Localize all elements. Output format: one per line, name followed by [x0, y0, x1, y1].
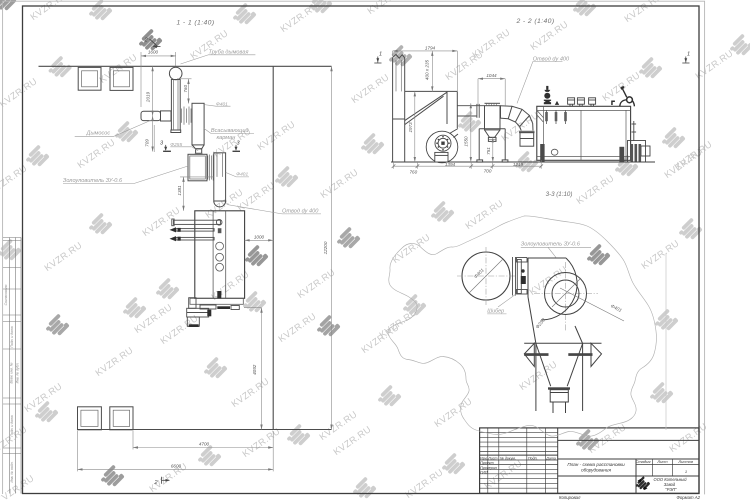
svg-text:KVZR.RU: KVZR.RU	[623, 0, 664, 24]
svg-text:KVZR.RU: KVZR.RU	[296, 267, 337, 300]
svg-text:Стадия: Стадия	[636, 459, 652, 464]
svg-text:Золоуловитель ЗУ-0.6: Золоуловитель ЗУ-0.6	[63, 178, 123, 184]
svg-text:1000: 1000	[254, 234, 265, 239]
svg-text:6600: 6600	[171, 464, 182, 469]
svg-text:Проект: Проект	[480, 461, 493, 465]
svg-text:12200: 12200	[323, 241, 328, 254]
svg-text:KVZR.RU: KVZR.RU	[360, 322, 401, 355]
svg-text:KVZR.RU: KVZR.RU	[694, 48, 735, 81]
svg-text:Изм.: Изм.	[480, 456, 488, 460]
svg-text:ГИП: ГИП	[480, 471, 488, 475]
svg-text:KVZR.RU: KVZR.RU	[404, 467, 445, 500]
svg-text:"РЭП": "РЭП"	[665, 487, 677, 492]
svg-text:KVZR.RU: KVZR.RU	[159, 313, 200, 346]
svg-text:№ докум.: № докум.	[500, 456, 516, 460]
svg-text:карман: карман	[217, 135, 236, 141]
svg-text:KVZR.RU: KVZR.RU	[94, 345, 135, 378]
svg-text:KVZR.RU: KVZR.RU	[0, 76, 39, 109]
svg-text:Лист: Лист	[487, 456, 497, 460]
svg-text:Инв. № дубл.: Инв. № дубл.	[16, 363, 20, 384]
svg-text:KVZR.RU: KVZR.RU	[43, 240, 84, 273]
svg-text:Листов: Листов	[677, 459, 693, 464]
svg-text:KVZR.RU: KVZR.RU	[518, 359, 559, 392]
svg-text:Формат А2: Формат А2	[677, 495, 701, 500]
svg-text:KVZR.RU: KVZR.RU	[668, 421, 709, 454]
svg-text:1 - 1 (1:40): 1 - 1 (1:40)	[176, 20, 214, 27]
svg-text:План - схема расстановки: План - схема расстановки	[567, 462, 625, 467]
svg-text:Взам. инв. №: Взам. инв. №	[10, 362, 14, 383]
svg-text:Подп. и дата: Подп. и дата	[10, 326, 14, 347]
svg-text:KVZR.RU: KVZR.RU	[189, 28, 230, 61]
svg-text:Инв. № подл.: Инв. № подл.	[10, 461, 14, 482]
svg-text:Ф401: Ф401	[216, 101, 228, 107]
svg-text:1: 1	[685, 469, 687, 474]
svg-text:KVZR.RU: KVZR.RU	[366, 0, 407, 16]
svg-text:KVZR.RU: KVZR.RU	[444, 49, 485, 82]
svg-text:1: 1	[687, 52, 690, 58]
svg-text:Проверил: Проверил	[480, 466, 496, 470]
svg-text:Ф250: Ф250	[535, 317, 547, 330]
svg-text:KVZR.RU: KVZR.RU	[663, 147, 704, 180]
svg-text:KVZR.RU: KVZR.RU	[241, 426, 282, 459]
svg-text:KVZR.RU: KVZR.RU	[148, 461, 189, 494]
svg-text:400 x 235: 400 x 235	[424, 59, 429, 80]
svg-text:1550: 1550	[464, 136, 469, 147]
svg-text:Шибер: Шибер	[487, 308, 504, 314]
svg-text:KVZR.RU: KVZR.RU	[0, 473, 36, 500]
svg-text:Подп. и дата: Подп. и дата	[10, 415, 14, 436]
svg-text:Ф401: Ф401	[609, 303, 623, 314]
svg-text:1381: 1381	[177, 185, 182, 196]
svg-text:KVZR.RU: KVZR.RU	[230, 376, 271, 409]
svg-text:Дымосос: Дымосос	[86, 131, 111, 137]
svg-text:Отвод dy 400: Отвод dy 400	[282, 208, 319, 214]
svg-text:3-3 (1:10): 3-3 (1:10)	[546, 191, 573, 198]
svg-text:Согласовано: Согласовано	[4, 285, 8, 306]
svg-text:1973: 1973	[408, 122, 413, 133]
svg-text:700: 700	[484, 168, 492, 173]
svg-text:KVZR.RU: KVZR.RU	[319, 167, 360, 200]
svg-text:Копировал: Копировал	[559, 495, 581, 500]
svg-text:KVZR.RU: KVZR.RU	[391, 232, 432, 265]
svg-text:Золоуловитель ЗУ-0.6: Золоуловитель ЗУ-0.6	[521, 242, 581, 248]
svg-text:1044: 1044	[486, 73, 497, 78]
svg-text:KVZR.RU: KVZR.RU	[141, 205, 182, 238]
svg-text:KVZR.RU: KVZR.RU	[277, 311, 318, 344]
svg-text:Лист: Лист	[656, 459, 668, 464]
svg-text:760: 760	[409, 169, 417, 174]
svg-text:Подп.: Подп.	[528, 456, 538, 460]
svg-text:Труба дымовая: Труба дымовая	[209, 49, 249, 55]
svg-text:1219: 1219	[513, 162, 524, 167]
svg-text:KVZR.RU: KVZR.RU	[350, 72, 391, 105]
svg-text:оборудования: оборудования	[581, 468, 611, 473]
svg-text:760: 760	[183, 85, 188, 93]
svg-text:KVZR.RU: KVZR.RU	[587, 422, 628, 455]
svg-text:KVZR.RU: KVZR.RU	[256, 119, 297, 152]
svg-text:KVZR.RU: KVZR.RU	[640, 238, 681, 271]
svg-text:2019: 2019	[146, 91, 151, 103]
svg-text:KVZR.RU: KVZR.RU	[0, 163, 29, 196]
svg-text:KVZR.RU: KVZR.RU	[575, 173, 616, 206]
svg-text:KVZR.RU: KVZR.RU	[76, 137, 117, 170]
svg-text:Дата: Дата	[545, 456, 555, 460]
svg-text:1794: 1794	[425, 45, 436, 50]
svg-text:2 - 2 (1:40): 2 - 2 (1:40)	[515, 18, 554, 25]
svg-text:KVZR.RU: KVZR.RU	[29, 0, 70, 22]
svg-text:4700: 4700	[199, 442, 210, 447]
svg-text:3: 3	[160, 140, 164, 146]
svg-text:4092: 4092	[252, 364, 257, 375]
svg-text:KVZR.RU: KVZR.RU	[0, 424, 29, 457]
svg-text:1394: 1394	[445, 162, 456, 167]
svg-text:Ф401: Ф401	[236, 171, 248, 177]
svg-text:KVZR.RU: KVZR.RU	[601, 70, 642, 103]
svg-text:751: 751	[486, 147, 491, 155]
svg-text:709: 709	[145, 139, 150, 147]
svg-text:1: 1	[379, 52, 382, 58]
svg-text:1600: 1600	[148, 50, 159, 55]
